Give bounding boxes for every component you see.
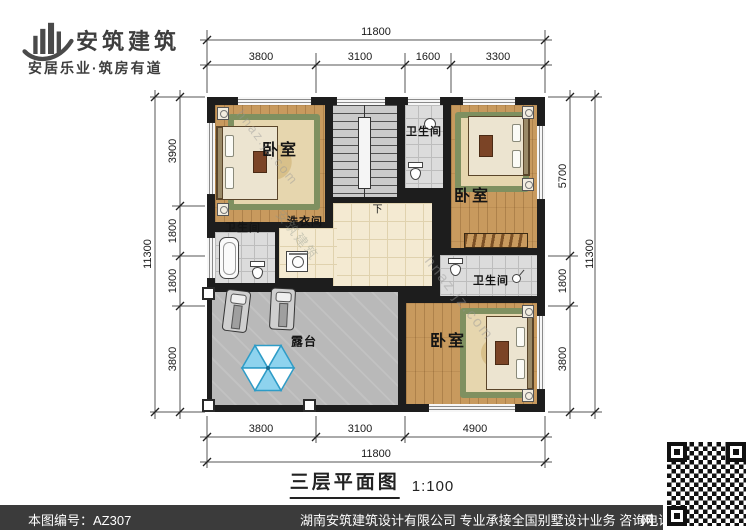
plan-scale: 1:100 <box>412 478 455 499</box>
bed-pillow <box>516 327 525 347</box>
window <box>207 122 215 195</box>
plan-title: 三层平面图 <box>290 467 400 499</box>
dim-right-seg-3: 3800 <box>557 347 569 371</box>
floor-plan-page: 安筑建筑 安居乐业·筑房有道 <box>0 0 750 530</box>
label-bathroom-bottom: 卫生间 <box>473 272 509 288</box>
dim-right-seg-2: 1800 <box>557 269 569 293</box>
bed-pillow <box>516 359 525 379</box>
bed <box>486 316 534 390</box>
room-staircase <box>333 105 397 197</box>
label-bedroom-top-left: 卧室 <box>262 136 298 160</box>
dim-bottom-seg-3: 4900 <box>463 423 487 435</box>
terrace-post <box>303 399 316 412</box>
window <box>428 404 516 412</box>
window <box>407 97 441 105</box>
qr-finder <box>667 442 687 462</box>
window <box>207 237 215 279</box>
shower-head <box>512 274 521 283</box>
dim-top-seg-4: 3300 <box>486 51 510 63</box>
bed-pillow <box>225 135 234 157</box>
dim-left-seg-1: 3900 <box>167 139 179 163</box>
terrace-post <box>202 399 215 412</box>
bed-blanket <box>495 341 509 365</box>
window <box>537 125 545 200</box>
nightstand <box>217 107 229 120</box>
dim-top-seg-2: 3100 <box>348 51 372 63</box>
dim-left-seg-2: 1800 <box>167 219 179 243</box>
dim-top-total: 11800 <box>361 26 391 38</box>
dim-left-seg-4: 3800 <box>167 347 179 371</box>
label-bedroom-top-right: 卧室 <box>454 182 490 206</box>
qr-code <box>663 438 750 530</box>
bed-pillow <box>512 124 521 142</box>
dim-right-seg-1: 5700 <box>557 164 569 188</box>
bed-blanket <box>479 135 493 157</box>
dim-left-total: 11300 <box>142 239 154 269</box>
dim-right-total: 11300 <box>584 239 596 269</box>
dim-bottom-seg-1: 3800 <box>249 423 273 435</box>
lounge-chair <box>269 287 296 330</box>
window <box>336 97 386 105</box>
label-bathroom-top: 卫生间 <box>406 123 442 139</box>
toilet <box>408 162 423 180</box>
nightstand <box>217 203 229 216</box>
bathtub <box>219 237 239 279</box>
lounge-chair <box>222 289 252 334</box>
dim-bottom-seg-2: 3100 <box>348 423 372 435</box>
nightstand <box>522 106 534 119</box>
site-label: 网 <box>641 510 654 529</box>
bed-headboard <box>527 317 533 389</box>
qr-finder <box>667 506 687 526</box>
bed <box>468 116 530 176</box>
nightstand <box>522 178 534 191</box>
dim-top-seg-3: 1600 <box>416 51 440 63</box>
drawing-number: 本图编号：AZ307 <box>28 510 131 529</box>
label-terrace: 露台 <box>291 333 317 350</box>
bed-headboard <box>217 127 223 199</box>
window <box>237 97 312 105</box>
dim-top-seg-1: 3800 <box>249 51 273 63</box>
stair-handrail <box>358 117 371 189</box>
nightstand <box>522 389 534 402</box>
label-stairs-down: 下 <box>373 201 384 216</box>
label-bedroom-bottom-right: 卧室 <box>430 327 466 351</box>
washing-machine <box>286 251 308 272</box>
brand-name: 安筑建筑 <box>76 24 180 56</box>
wardrobe <box>464 233 528 248</box>
window <box>462 97 516 105</box>
label-laundry: 洗衣间 <box>287 213 323 229</box>
label-bathroom-left: 卫生间 <box>225 219 261 235</box>
footer-bar: 本图编号：AZ307 湖南安筑建筑设计有限公司 专业承接全国别墅设计业务 咨询电… <box>0 505 750 530</box>
qr-finder <box>726 442 746 462</box>
terrace-post <box>202 287 215 300</box>
bed-pillow <box>225 167 234 189</box>
title-block: 三层平面图 1:100 <box>290 467 455 499</box>
nightstand <box>522 305 534 318</box>
window <box>537 315 545 390</box>
brand-tagline: 安居乐业·筑房有道 <box>28 58 163 78</box>
dim-left-seg-3: 1800 <box>167 269 179 293</box>
dim-bottom-total: 11800 <box>361 448 391 460</box>
toilet <box>448 258 463 276</box>
toilet <box>250 261 265 279</box>
bed-headboard <box>523 117 529 175</box>
bed-pillow <box>512 150 521 168</box>
